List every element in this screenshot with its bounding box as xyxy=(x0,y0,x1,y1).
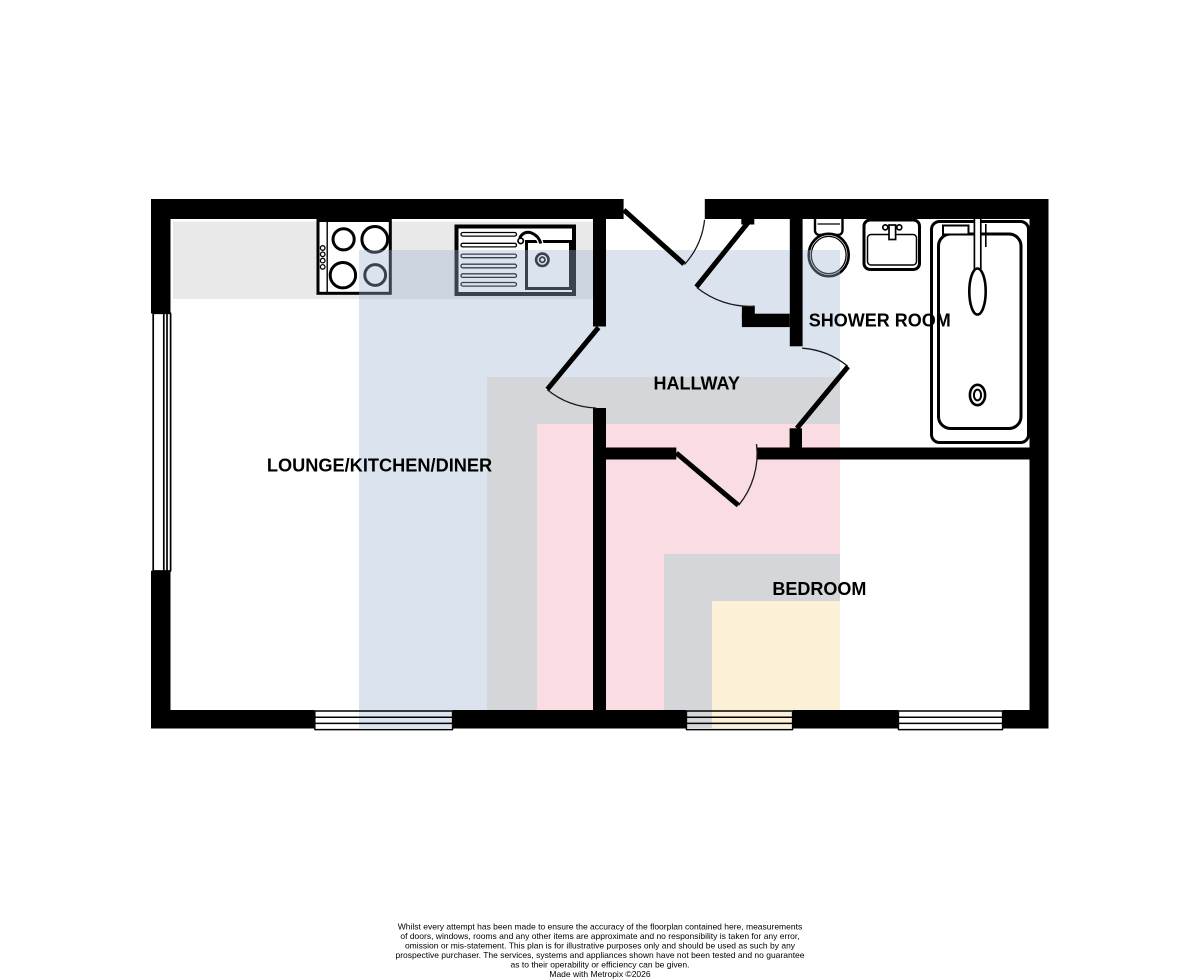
svg-text:omission or mis-statement. Thi: omission or mis-statement. This plan is … xyxy=(405,940,796,950)
svg-text:SHOWER ROOM: SHOWER ROOM xyxy=(809,311,951,331)
svg-text:BEDROOM: BEDROOM xyxy=(772,579,866,599)
svg-text:Made with Metropix ©2026: Made with Metropix ©2026 xyxy=(549,969,651,979)
svg-text:Whilst every attempt has been: Whilst every attempt has been made to en… xyxy=(398,922,802,932)
svg-text:HALLWAY: HALLWAY xyxy=(654,374,740,394)
svg-text:as to their operability or eff: as to their operability or efficiency ca… xyxy=(511,959,690,969)
svg-text:LOUNGE/KITCHEN/DINER: LOUNGE/KITCHEN/DINER xyxy=(267,456,492,476)
